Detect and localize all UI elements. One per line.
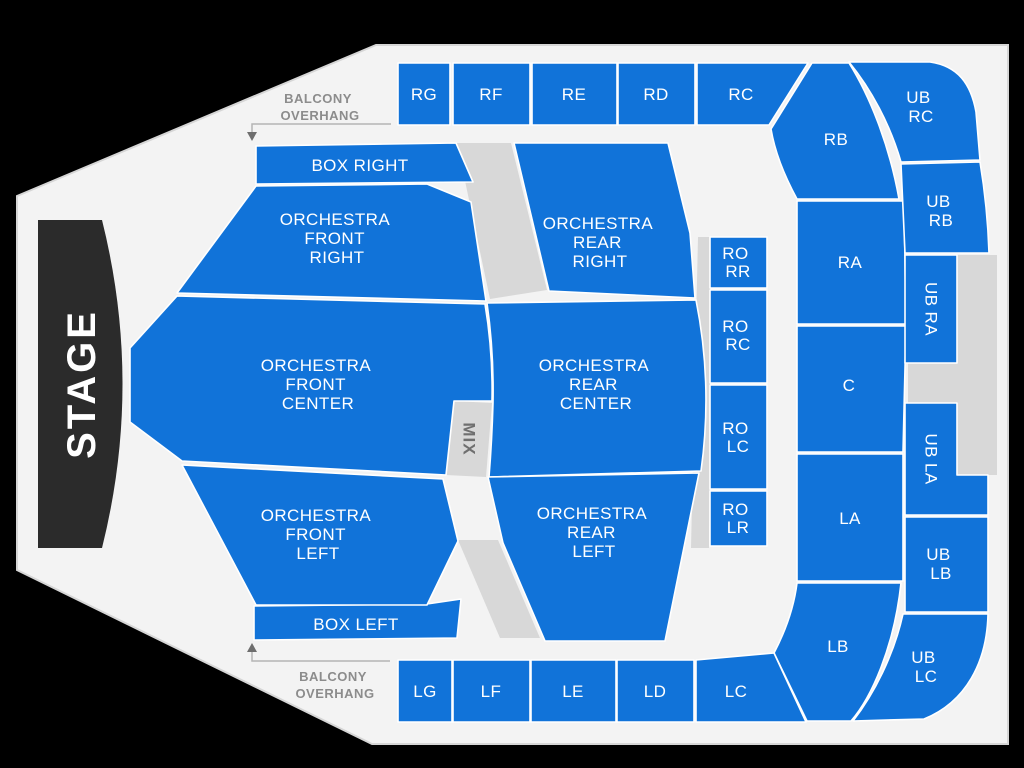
section-ro-rr[interactable] [710, 237, 767, 288]
section-orchestra-front-center[interactable] [130, 296, 492, 475]
section-ro-rc[interactable] [710, 290, 767, 383]
section-ra[interactable] [797, 201, 906, 324]
seating-map: STAGE RG RF RE RD RC RB RA C LA LB LG LF… [0, 0, 1024, 768]
section-rg[interactable] [398, 63, 450, 125]
section-ld[interactable] [617, 660, 694, 722]
section-le[interactable] [531, 660, 616, 722]
stage-label: STAGE [60, 309, 104, 459]
section-lg[interactable] [398, 660, 452, 722]
section-ro-lr[interactable] [710, 491, 767, 546]
section-ub-ra[interactable] [905, 255, 957, 363]
section-ub-lb[interactable] [905, 517, 988, 612]
section-c[interactable] [797, 326, 906, 452]
section-la[interactable] [797, 454, 903, 581]
section-ub-rb[interactable] [901, 162, 989, 253]
seating-map-page: STAGE RG RF RE RD RC RB RA C LA LB LG LF… [0, 0, 1024, 768]
section-ro-lc[interactable] [710, 385, 767, 489]
section-rd[interactable] [618, 63, 695, 125]
section-orchestra-rear-center[interactable] [487, 300, 706, 477]
label-mix: MIX [460, 422, 479, 455]
section-lf[interactable] [453, 660, 530, 722]
section-re[interactable] [532, 63, 617, 125]
section-rf[interactable] [453, 63, 530, 125]
section-box-right[interactable] [256, 143, 473, 184]
